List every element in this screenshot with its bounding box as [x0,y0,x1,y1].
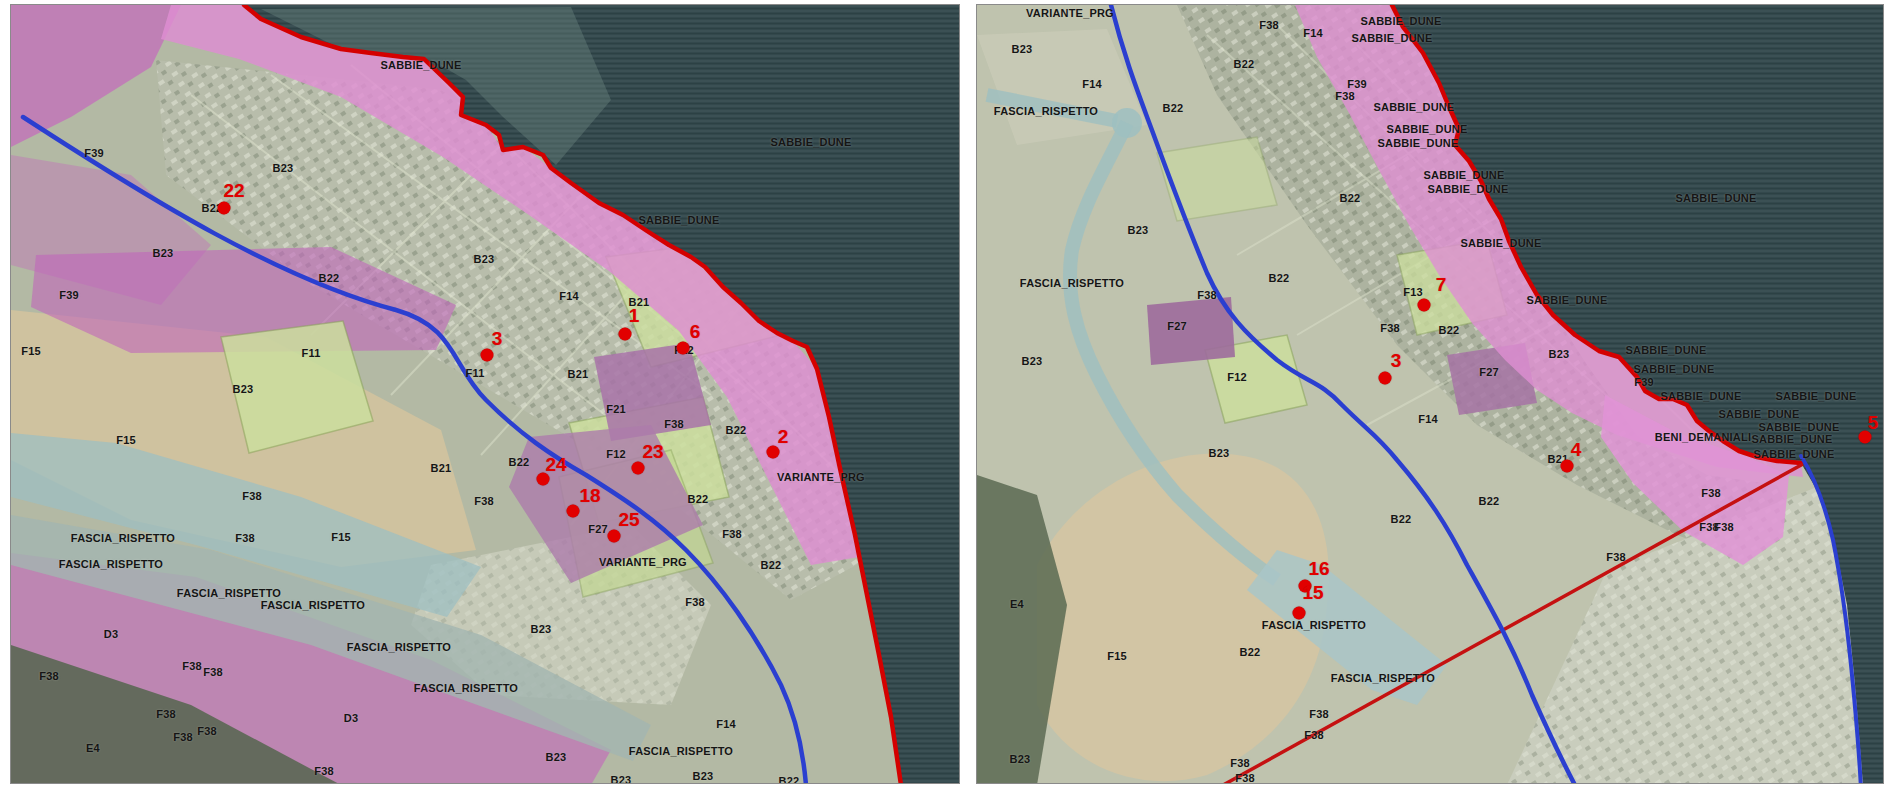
zone-label: F15 [1107,650,1127,662]
sample-point-number: 7 [1436,274,1447,296]
zone-label: F15 [116,434,136,446]
zone-label: B22 [1234,58,1255,70]
zone-label: SABBIE_DUNE [1660,390,1741,402]
zone-label: SABBIE_DUNE [1625,344,1706,356]
zone-label: F38 [1259,19,1279,31]
zone-label: SABBIE_DUNE [1675,192,1756,204]
zone-label: F11 [466,367,485,379]
zone-label: FASCIA_RISPETTO [1020,277,1124,289]
sample-point-number: 25 [618,509,639,531]
map-panel-right[interactable]: VARIANTE_PRGB23F14FASCIA_RISPETTOB22F38F… [976,4,1884,784]
zone-label: B22 [1340,192,1361,204]
zone-label: SABBIE_DUNE [1718,408,1799,420]
sample-point-number: 4 [1571,439,1582,461]
zone-label: B21 [431,462,452,474]
zone-label: F38 [39,670,59,682]
zone-label: B23 [153,247,174,259]
sample-point-number: 22 [223,180,244,202]
zone-label: B22 [1240,646,1261,658]
zone-label: F38 [1335,90,1355,102]
zone-label: B23 [273,162,294,174]
zone-label: F12 [1227,371,1247,383]
zone-label: F38 [156,708,176,720]
sample-point-dot[interactable] [608,530,621,543]
zone-label: F15 [331,531,351,543]
zone-label: B22 [1269,272,1290,284]
zone-label: F14 [1082,78,1102,90]
zone-label: FASCIA_RISPETTO [59,558,163,570]
zone-label: F14 [1303,27,1323,39]
zone-label: F14 [1418,413,1438,425]
zone-label: F13 [1403,286,1423,298]
zone-label: B23 [531,623,552,635]
zone-label: B22 [1391,513,1412,525]
sample-point-dot[interactable] [481,349,494,362]
zone-label: SABBIE_DUNE [1751,433,1832,445]
sample-point-number: 6 [690,321,701,343]
sample-point-dot[interactable] [1561,460,1574,473]
zone-label: B22 [509,456,530,468]
sample-point-number: 3 [492,328,503,350]
zone-label: F38 [664,418,684,430]
zone-label: FASCIA_RISPETTO [1262,619,1366,631]
zone-label: F38 [203,666,223,678]
zone-label: B23 [611,774,632,784]
zone-label: F38 [1380,322,1400,334]
zone-label: E4 [1010,598,1024,610]
zone-label: F38 [685,596,705,608]
zone-label: SABBIE_DUNE [1427,183,1508,195]
sample-point-number: 5 [1868,412,1879,434]
zone-label: B22 [688,493,709,505]
zone-label: B23 [1128,224,1149,236]
zone-label: SABBIE_DUNE [1351,32,1432,44]
zone-label: SABBIE_DUNE [1633,363,1714,375]
zone-label: VARIANTE_PRG [777,471,865,483]
zone-label: F38 [1714,521,1734,533]
sample-point-number: 2 [778,426,789,448]
zone-label: F38 [1309,708,1329,720]
zone-label: F38 [1701,487,1721,499]
zone-label: B23 [1209,447,1230,459]
zone-label: B23 [1010,753,1031,765]
zone-label: E4 [86,742,100,754]
map-left-labels: SABBIE_DUNESABBIE_DUNESABBIE_DUNEF39B23B… [11,5,959,783]
zone-label: VARIANTE_PRG [1026,7,1114,19]
zone-label: F14 [559,290,579,302]
zone-label: F15 [21,345,41,357]
zone-label: FASCIA_RISPETTO [414,682,518,694]
sample-point-number: 18 [579,485,600,507]
zone-label: F38 [1230,757,1250,769]
zone-label: F27 [1167,320,1187,332]
zone-label: F38 [197,725,217,737]
zone-label: BENI_DEMANIALI [1655,431,1751,443]
zone-label: FASCIA_RISPETTO [629,745,733,757]
zone-label: F38 [242,490,262,502]
zone-label: B22 [726,424,747,436]
zone-label: F39 [59,289,79,301]
zone-label: B21 [568,368,589,380]
zone-label: F38 [173,731,193,743]
zone-label: D3 [344,712,358,724]
zone-label: F12 [606,448,626,460]
sample-point-number: 1 [629,305,640,327]
zone-label: D3 [104,628,118,640]
zone-label: SABBIE_DUNE [1753,448,1834,460]
zone-label: SABBIE_DUNE [638,214,719,226]
zone-label: B22 [779,775,800,784]
zone-label: B22 [1479,495,1500,507]
zone-label: FASCIA_RISPETTO [994,105,1098,117]
sample-point-number: 16 [1308,558,1329,580]
zone-label: B23 [1549,348,1570,360]
zone-label: F38 [1235,772,1255,784]
sample-point-dot[interactable] [632,462,645,475]
zone-label: F38 [182,660,202,672]
zone-label: SABBIE_DUNE [1526,294,1607,306]
zone-label: F38 [1606,551,1626,563]
zone-label: B23 [1022,355,1043,367]
zone-label: F39 [1347,78,1367,90]
sample-point-number: 15 [1302,582,1323,604]
zone-label: B23 [1012,43,1033,55]
sample-point-dot[interactable] [567,505,580,518]
zone-label: B23 [546,751,567,763]
zone-label: B22 [1439,324,1460,336]
zone-label: B22 [319,272,340,284]
zone-label: F39 [1634,376,1654,388]
zone-label: FASCIA_RISPETTO [1331,672,1435,684]
sample-point-dot[interactable] [218,202,231,215]
map-panel-left[interactable]: SABBIE_DUNESABBIE_DUNESABBIE_DUNEF39B23B… [10,4,960,784]
zone-label: SABBIE_DUNE [1775,390,1856,402]
zone-label: B23 [693,770,714,782]
zone-label: FASCIA_RISPETTO [347,641,451,653]
zone-label: SABBIE_DUNE [1758,421,1839,433]
sample-point-number: 3 [1391,350,1402,372]
zone-label: F27 [1479,366,1499,378]
zone-label: SABBIE_DUNE [1386,123,1467,135]
map-right-labels: VARIANTE_PRGB23F14FASCIA_RISPETTOB22F38F… [977,5,1883,783]
zone-label: SABBIE_DUNE [380,59,461,71]
zone-label: SABBIE_DUNE [1373,101,1454,113]
zone-label: F39 [84,147,104,159]
sample-point-dot[interactable] [677,342,690,355]
zone-label: F38 [722,528,742,540]
zone-label: FASCIA_RISPETTO [177,587,281,599]
sample-point-number: 24 [545,454,566,476]
zone-label: F38 [1304,729,1324,741]
zone-label: F11 [302,347,321,359]
sample-point-number: 23 [642,441,663,463]
zone-label: VARIANTE_PRG [599,556,687,568]
screenshot-root: SABBIE_DUNESABBIE_DUNESABBIE_DUNEF39B23B… [0,0,1900,788]
zone-label: SABBIE_DUNE [770,136,851,148]
zone-label: SABBIE_DUNE [1460,237,1541,249]
zone-label: B22 [1163,102,1184,114]
sample-point-dot[interactable] [1379,372,1392,385]
zone-label: SABBIE_DUNE [1360,15,1441,27]
zone-label: B23 [474,253,495,265]
zone-label: SABBIE_DUNE [1423,169,1504,181]
zone-label: F21 [606,403,626,415]
zone-label: F14 [716,718,736,730]
zone-label: FASCIA_RISPETTO [261,599,365,611]
zone-label: B23 [233,383,254,395]
sample-point-dot[interactable] [619,328,632,341]
zone-label: FASCIA_RISPETTO [71,532,175,544]
zone-label: SABBIE_DUNE [1377,137,1458,149]
zone-label: B22 [761,559,782,571]
zone-label: F38 [235,532,255,544]
zone-label: F38 [1197,289,1217,301]
zone-label: F38 [474,495,494,507]
zone-label: F38 [314,765,334,777]
sample-point-dot[interactable] [1418,299,1431,312]
sample-point-dot[interactable] [1293,607,1306,620]
zone-label: F27 [588,523,608,535]
